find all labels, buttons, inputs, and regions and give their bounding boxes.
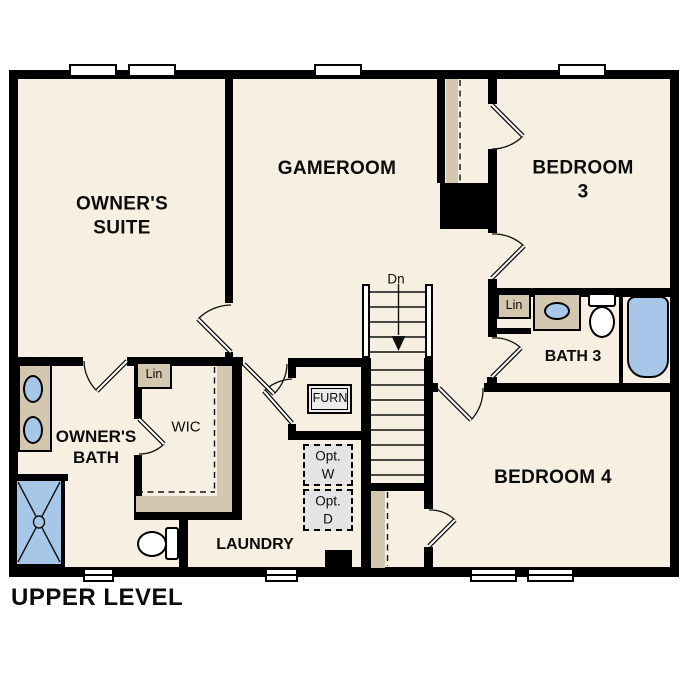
bedroom3-closet-shelf bbox=[446, 79, 458, 183]
wall-segment bbox=[295, 431, 361, 440]
wall-segment bbox=[361, 483, 433, 491]
label-linen-bath3: Lin bbox=[506, 298, 523, 314]
bath3-toilet-bowl bbox=[589, 306, 615, 338]
wall-segment bbox=[232, 366, 242, 512]
wall-segment bbox=[488, 79, 497, 104]
wall-segment bbox=[225, 79, 233, 303]
window-sash bbox=[558, 75, 606, 77]
window-sash bbox=[83, 574, 114, 576]
window bbox=[83, 568, 114, 582]
bath3-toilet-tank bbox=[588, 293, 616, 307]
room-label-owners-bath: OWNER'S BATH bbox=[56, 426, 137, 469]
bath3-sink bbox=[544, 302, 570, 320]
label-furnace: FURN bbox=[313, 391, 348, 407]
window-sash bbox=[527, 574, 574, 576]
owners-bath-sink-1 bbox=[23, 375, 43, 403]
window-sash bbox=[265, 574, 298, 576]
bedroom4-closet-shelf bbox=[371, 491, 385, 568]
room-label-bath3: BATH 3 bbox=[545, 347, 602, 367]
room-label-owners-suite: OWNER'S SUITE bbox=[76, 192, 168, 240]
wall-segment bbox=[288, 358, 370, 367]
bath3-tub bbox=[627, 296, 669, 378]
wall-segment bbox=[437, 79, 445, 183]
room-label-laundry: LAUNDRY bbox=[216, 535, 294, 555]
stair-railing-right bbox=[425, 284, 433, 358]
wall-segment bbox=[493, 328, 531, 334]
wall-segment bbox=[484, 383, 670, 392]
window-sash bbox=[470, 574, 517, 576]
wall-segment bbox=[424, 547, 433, 568]
label-opt-washer: Opt. W bbox=[315, 447, 341, 482]
floor-plan: OWNER'S SUITE GAMEROOM BEDROOM 3 BEDROOM… bbox=[0, 0, 687, 687]
wall-segment bbox=[179, 512, 188, 568]
owners-bath-sink-2 bbox=[23, 416, 43, 444]
room-label-bedroom3: BEDROOM 3 bbox=[531, 156, 635, 204]
wall-segment bbox=[424, 383, 438, 392]
wic-shelf-bottom bbox=[136, 496, 232, 512]
wall-segment bbox=[619, 297, 623, 383]
window-sash bbox=[128, 75, 176, 77]
window bbox=[69, 64, 117, 79]
wall-segment bbox=[488, 149, 497, 233]
window-sash bbox=[314, 75, 362, 77]
window bbox=[527, 568, 574, 582]
label-stairs-down: Dn bbox=[387, 272, 404, 289]
window-sash bbox=[69, 75, 117, 77]
wall-segment bbox=[288, 424, 296, 440]
wall-segment bbox=[134, 512, 242, 520]
room-label-wic: WIC bbox=[171, 419, 200, 438]
chase-block bbox=[325, 550, 352, 568]
room-label-gameroom: GAMEROOM bbox=[278, 157, 397, 181]
wall-segment bbox=[288, 358, 296, 378]
wall-segment bbox=[424, 392, 433, 509]
wall-segment bbox=[361, 358, 371, 568]
wic-shelf-right bbox=[217, 366, 232, 496]
window bbox=[265, 568, 298, 582]
owners-toilet-tank bbox=[165, 527, 179, 560]
window bbox=[558, 64, 606, 79]
label-linen-owners: Lin bbox=[146, 367, 163, 383]
wall-segment bbox=[670, 70, 679, 577]
window bbox=[314, 64, 362, 79]
window bbox=[128, 64, 176, 79]
stair-railing-left bbox=[362, 284, 370, 358]
owners-shower bbox=[13, 477, 65, 568]
level-title: UPPER LEVEL bbox=[11, 584, 183, 612]
chase-block bbox=[440, 183, 488, 229]
owners-toilet-bowl bbox=[137, 531, 167, 557]
room-label-bedroom4: BEDROOM 4 bbox=[494, 466, 612, 490]
label-opt-dryer: Opt. D bbox=[315, 492, 341, 527]
window bbox=[470, 568, 517, 582]
